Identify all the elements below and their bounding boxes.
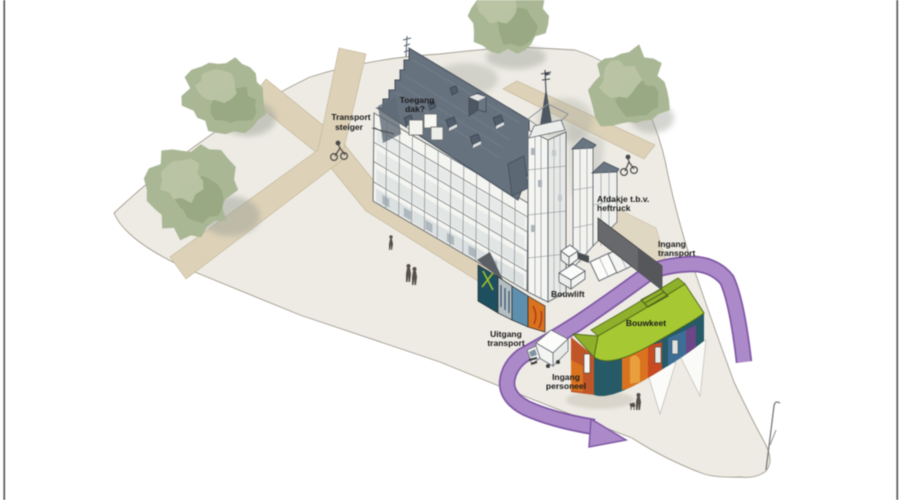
svg-text:heftruck: heftruck xyxy=(597,203,631,213)
svg-text:transport: transport xyxy=(487,338,524,348)
svg-text:personeel: personeel xyxy=(546,381,586,391)
svg-text:transport: transport xyxy=(658,248,695,258)
svg-text:Transport: Transport xyxy=(331,112,370,122)
svg-text:steiger: steiger xyxy=(335,122,364,132)
svg-text:Bouwkeet: Bouwkeet xyxy=(626,318,666,328)
svg-text:Bouwlift: Bouwlift xyxy=(551,289,585,299)
svg-text:dak?: dak? xyxy=(405,104,425,114)
